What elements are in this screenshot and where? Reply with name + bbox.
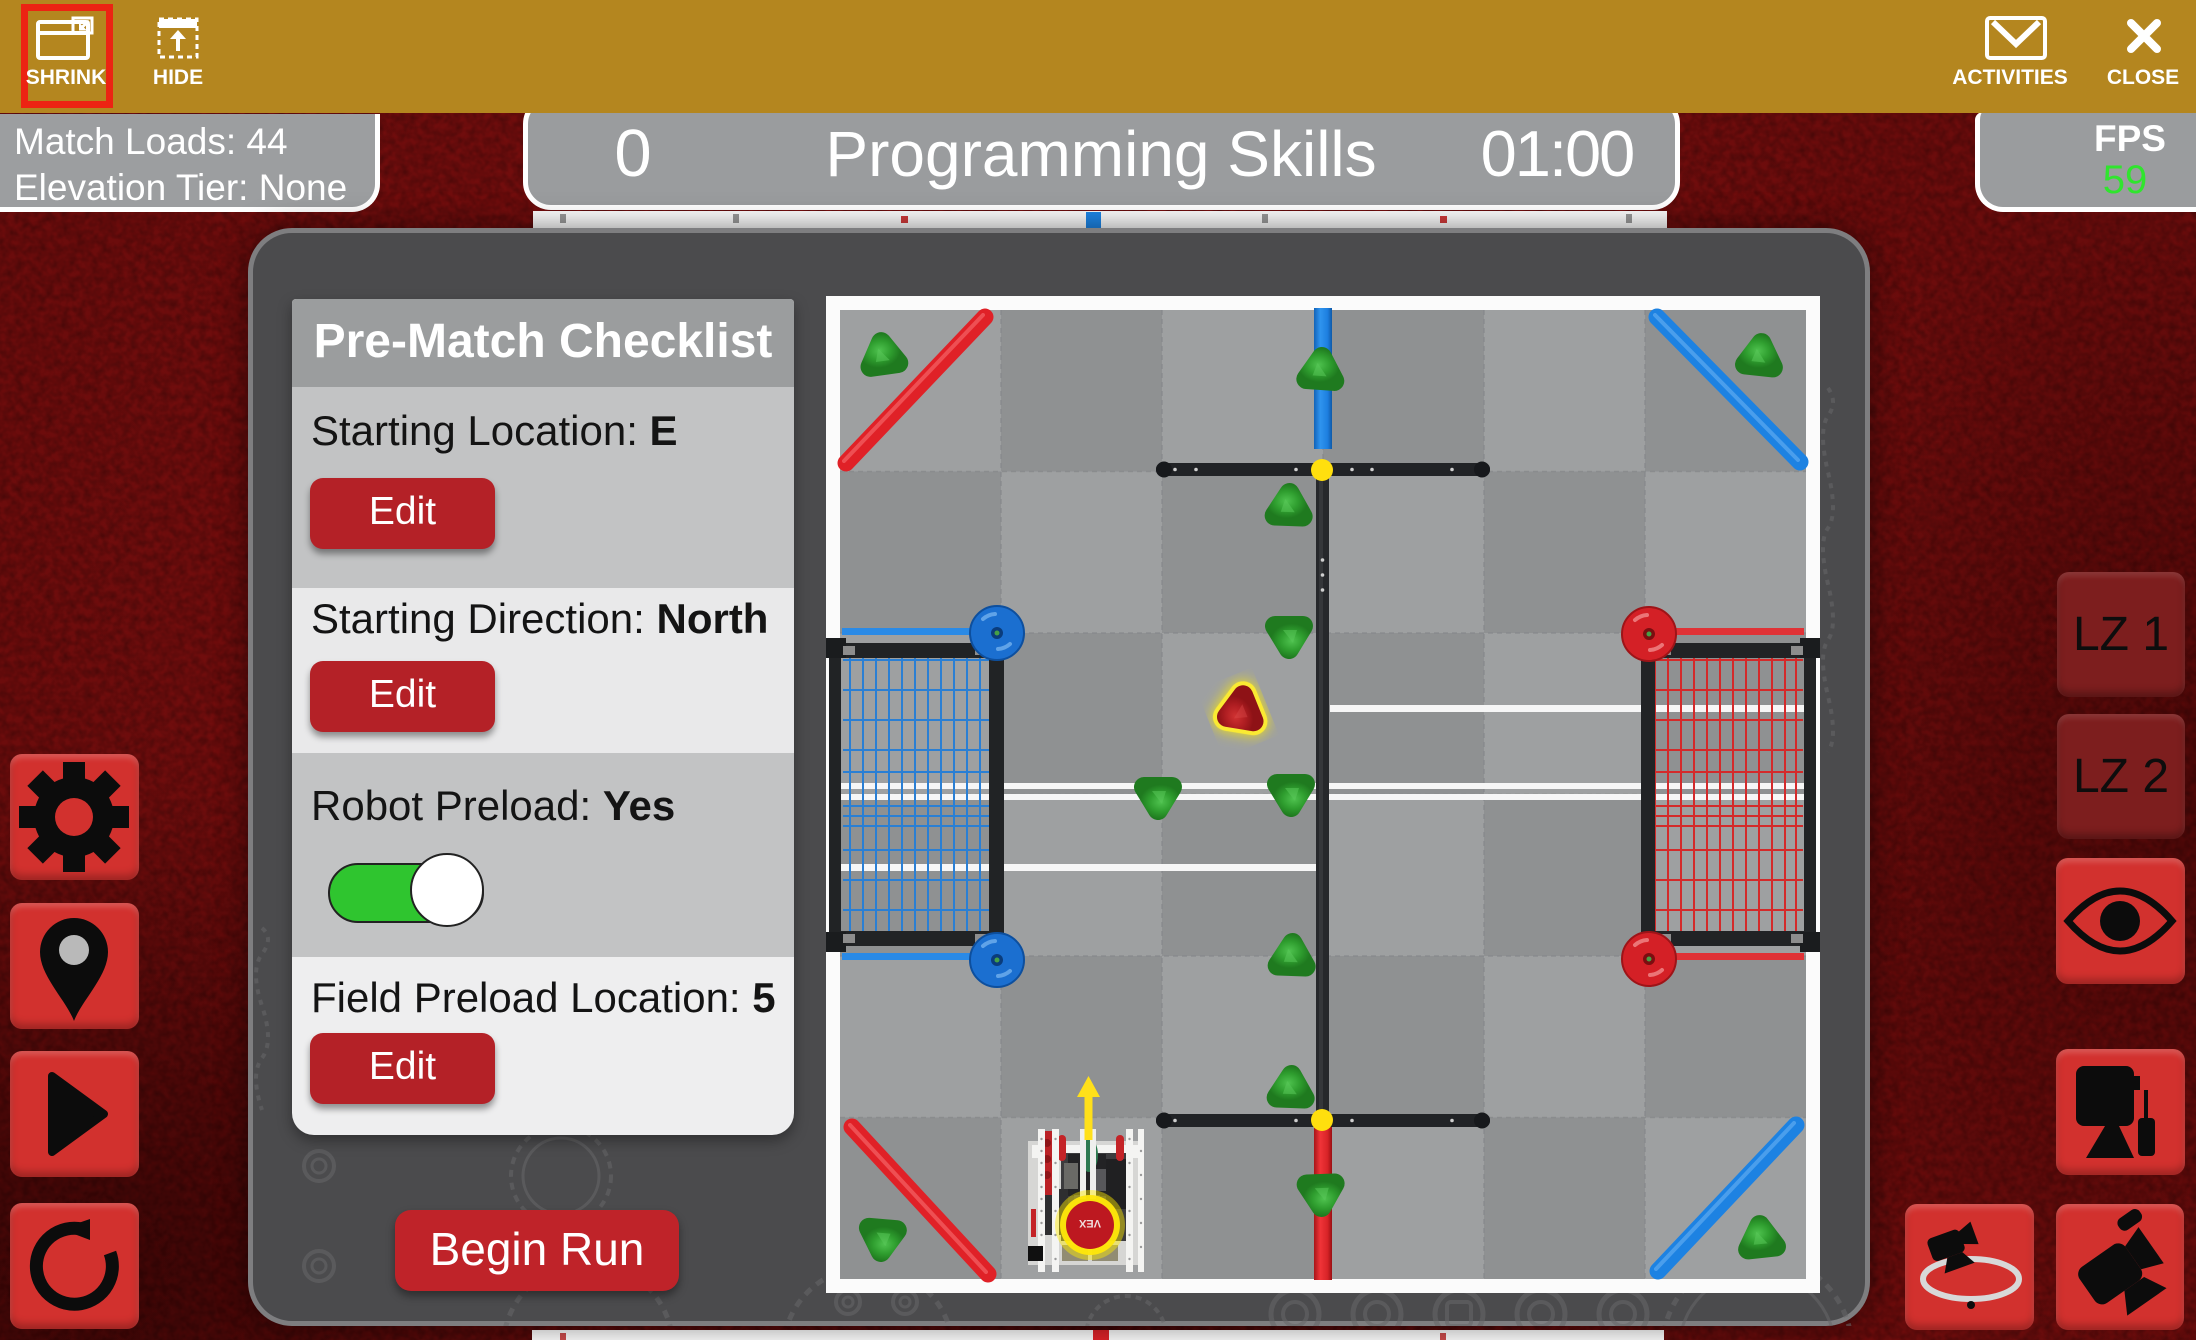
svg-text:VEX: VEX: [1078, 1217, 1101, 1229]
